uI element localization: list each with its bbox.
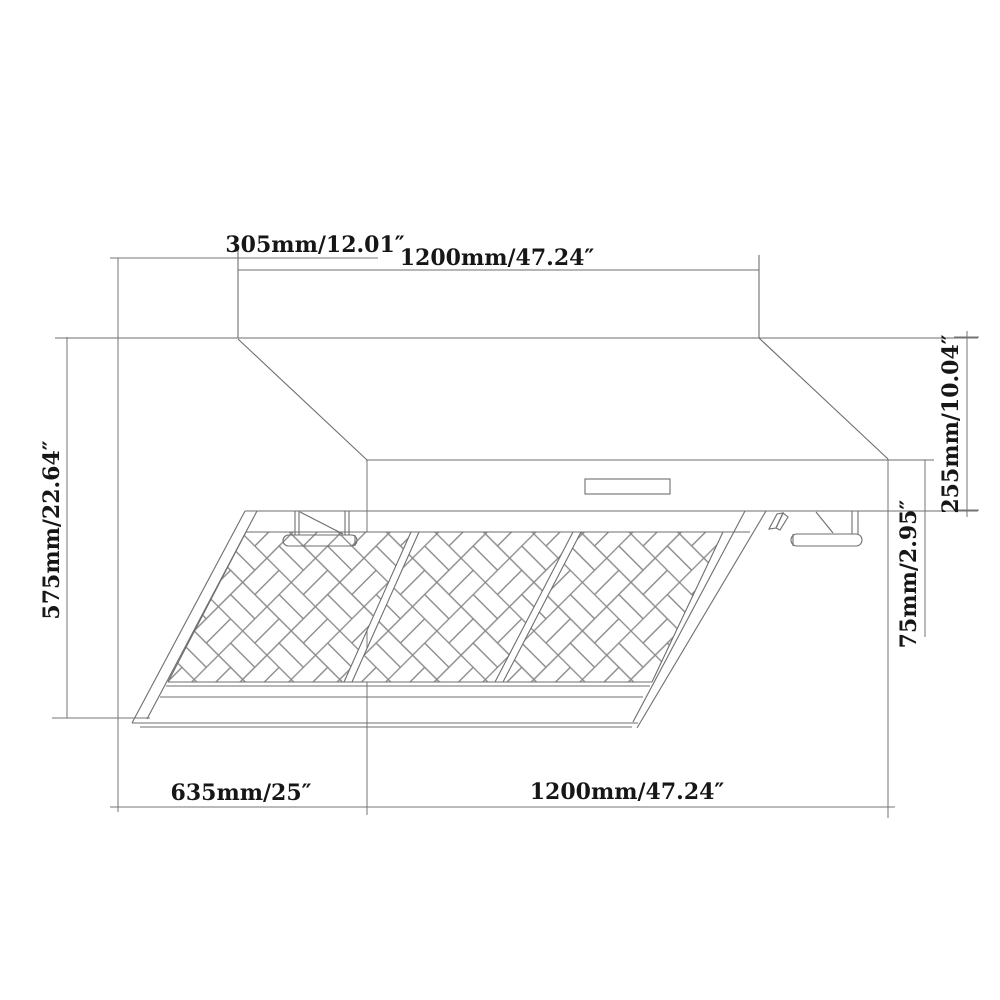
dim-label-chimney-width: 1200mm/47.24″ bbox=[400, 245, 595, 271]
baffle-tray bbox=[132, 511, 766, 728]
range-hood-dimension-drawing: 305mm/12.01″ 1200mm/47.24″ 575mm/22.64″ … bbox=[0, 0, 1000, 1000]
damper-wedge-icon bbox=[769, 513, 788, 530]
technical-drawing-svg: 305mm/12.01″ 1200mm/47.24″ 575mm/22.64″ … bbox=[0, 0, 1000, 1000]
control-panel bbox=[585, 479, 670, 494]
dim-label-chimney-depth: 305mm/12.01″ bbox=[225, 232, 404, 258]
dim-label-total-height: 575mm/22.64″ bbox=[39, 440, 65, 619]
dimension-labels: 305mm/12.01″ 1200mm/47.24″ 575mm/22.64″ … bbox=[39, 232, 964, 806]
dim-label-front-lip-height: 75mm/2.95″ bbox=[896, 500, 922, 649]
dim-label-hood-width: 1200mm/47.24″ bbox=[530, 779, 725, 805]
dim-label-hood-depth: 635mm/25″ bbox=[171, 780, 312, 806]
dim-label-body-height: 255mm/10.04″ bbox=[938, 334, 964, 513]
canopy bbox=[238, 338, 978, 511]
right-handle-rail bbox=[791, 511, 862, 546]
